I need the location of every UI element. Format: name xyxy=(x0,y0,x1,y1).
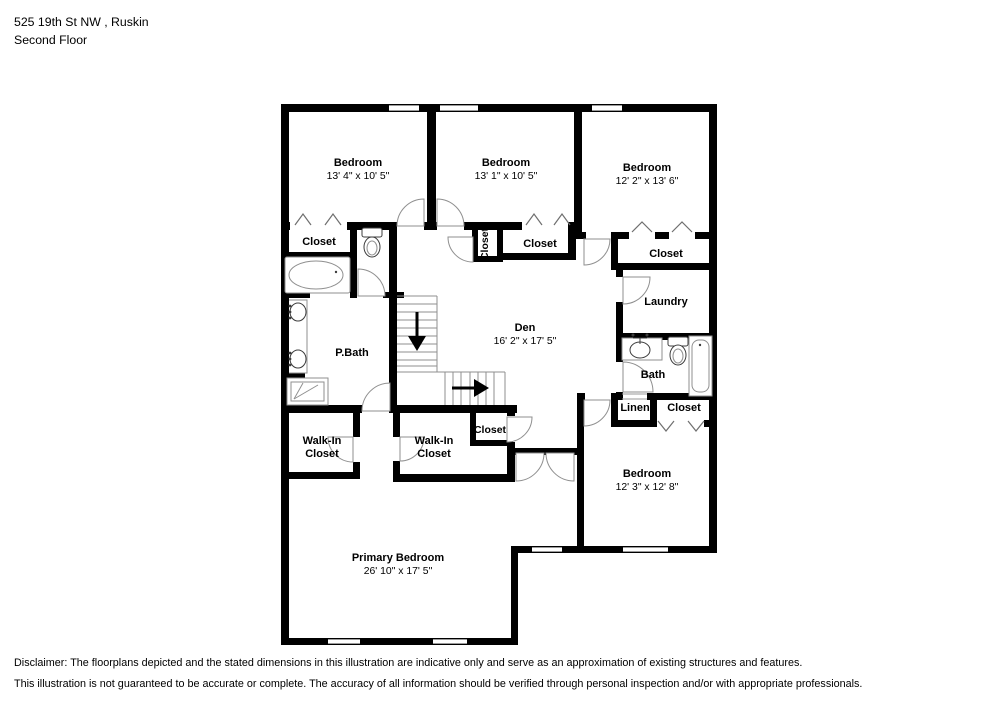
label-walk-in-closet-left: Walk-In Closet xyxy=(303,435,342,460)
label-primary-bedroom: Primary Bedroom 26' 10" x 17' 5" xyxy=(352,552,445,577)
label-walk-in-closet-mid: Walk-In Closet xyxy=(415,435,454,460)
staircase xyxy=(397,296,505,405)
room-name: Closet xyxy=(667,402,701,414)
window xyxy=(623,547,668,552)
window xyxy=(433,639,467,644)
window xyxy=(592,105,622,111)
door-bedroom-top-left xyxy=(397,199,424,226)
floorplan-svg: 525 19th St NW , Ruskin Second Floor xyxy=(0,0,1000,707)
room-labels: Bedroom 13' 4" x 10' 5" Bedroom 13' 1" x… xyxy=(302,157,701,577)
label-bedroom-top-mid: Bedroom 13' 1" x 10' 5" xyxy=(475,157,538,182)
room-name: Closet xyxy=(302,236,336,248)
room-name: Bedroom xyxy=(482,157,531,169)
label-den: Den 16' 2" x 17' 5" xyxy=(494,322,557,347)
label-bedroom-right: Bedroom 12' 3" x 12' 8" xyxy=(616,468,679,493)
room-name: Closet xyxy=(523,238,557,250)
room-name: Bedroom xyxy=(623,468,672,480)
room-name: Walk-In xyxy=(303,435,342,447)
room-name: Walk-In xyxy=(415,435,454,447)
room-name: Laundry xyxy=(644,296,688,308)
bathtub-icon xyxy=(285,257,350,293)
room-dims: 13' 1" x 10' 5" xyxy=(475,171,538,182)
floorplan-page: 525 19th St NW , Ruskin Second Floor xyxy=(0,0,1000,707)
label-pbath: P.Bath xyxy=(335,347,369,359)
room-name: Linen xyxy=(620,402,650,414)
room-name: Closet xyxy=(474,424,507,436)
door-pbath xyxy=(362,383,390,411)
label-closet-top-left: Closet xyxy=(302,236,336,248)
bath-tub-icon xyxy=(689,336,712,396)
vanity-sinks-icon xyxy=(289,300,307,373)
address-text: 525 19th St NW , Ruskin xyxy=(14,15,149,29)
room-name: Closet xyxy=(479,227,491,260)
window xyxy=(532,547,562,552)
label-bedroom-top-right: Bedroom 12' 2" x 13' 6" xyxy=(616,162,679,187)
stairs-down-arrow xyxy=(408,312,426,351)
room-dims: 26' 10" x 17' 5" xyxy=(364,566,433,577)
disclaimer-line-2: This illustration is not guaranteed to b… xyxy=(14,678,862,690)
door-primary-left xyxy=(516,453,544,481)
window xyxy=(440,105,478,111)
label-closet-hall: Closet xyxy=(474,424,507,436)
room-name: Bedroom xyxy=(334,157,383,169)
label-bath: Bath xyxy=(641,369,666,381)
room-dims: 16' 2" x 17' 5" xyxy=(494,336,557,347)
window xyxy=(389,105,419,111)
door-wc xyxy=(358,269,385,296)
room-name: P.Bath xyxy=(335,347,369,359)
room-dims: 13' 4" x 10' 5" xyxy=(327,171,390,182)
toilet-icon xyxy=(362,228,382,257)
label-closet-vertical: Closet xyxy=(479,227,491,260)
label-bedroom-top-left: Bedroom 13' 4" x 10' 5" xyxy=(327,157,390,182)
door-closet-vertical xyxy=(448,237,473,262)
window xyxy=(328,639,360,644)
room-name: Bedroom xyxy=(623,162,672,174)
room-name: Bath xyxy=(641,369,666,381)
door-bedroom-top-right xyxy=(584,239,610,265)
room-name: Den xyxy=(515,322,536,334)
room-name: Closet xyxy=(417,448,451,460)
bath-toilet-icon xyxy=(668,337,688,365)
door-bedroom-right xyxy=(584,400,610,426)
label-closet-top-right: Closet xyxy=(649,248,683,260)
door-closet-hall xyxy=(507,417,532,442)
room-name: Closet xyxy=(649,248,683,260)
room-name: Primary Bedroom xyxy=(352,552,445,564)
floor-text: Second Floor xyxy=(14,33,87,47)
room-dims: 12' 2" x 13' 6" xyxy=(616,176,679,187)
label-closet-bedroom-right: Closet xyxy=(667,402,701,414)
label-linen: Linen xyxy=(620,402,650,414)
door-primary-right xyxy=(546,453,574,481)
room-name: Closet xyxy=(305,448,339,460)
door-bedroom-top-mid xyxy=(437,199,464,226)
label-laundry: Laundry xyxy=(644,296,688,308)
room-dims: 12' 3" x 12' 8" xyxy=(616,482,679,493)
label-closet-top-mid: Closet xyxy=(523,238,557,250)
shower-icon xyxy=(287,378,328,405)
disclaimer-line-1: Disclaimer: The floorplans depicted and … xyxy=(14,657,802,669)
linen-opening xyxy=(622,394,647,399)
